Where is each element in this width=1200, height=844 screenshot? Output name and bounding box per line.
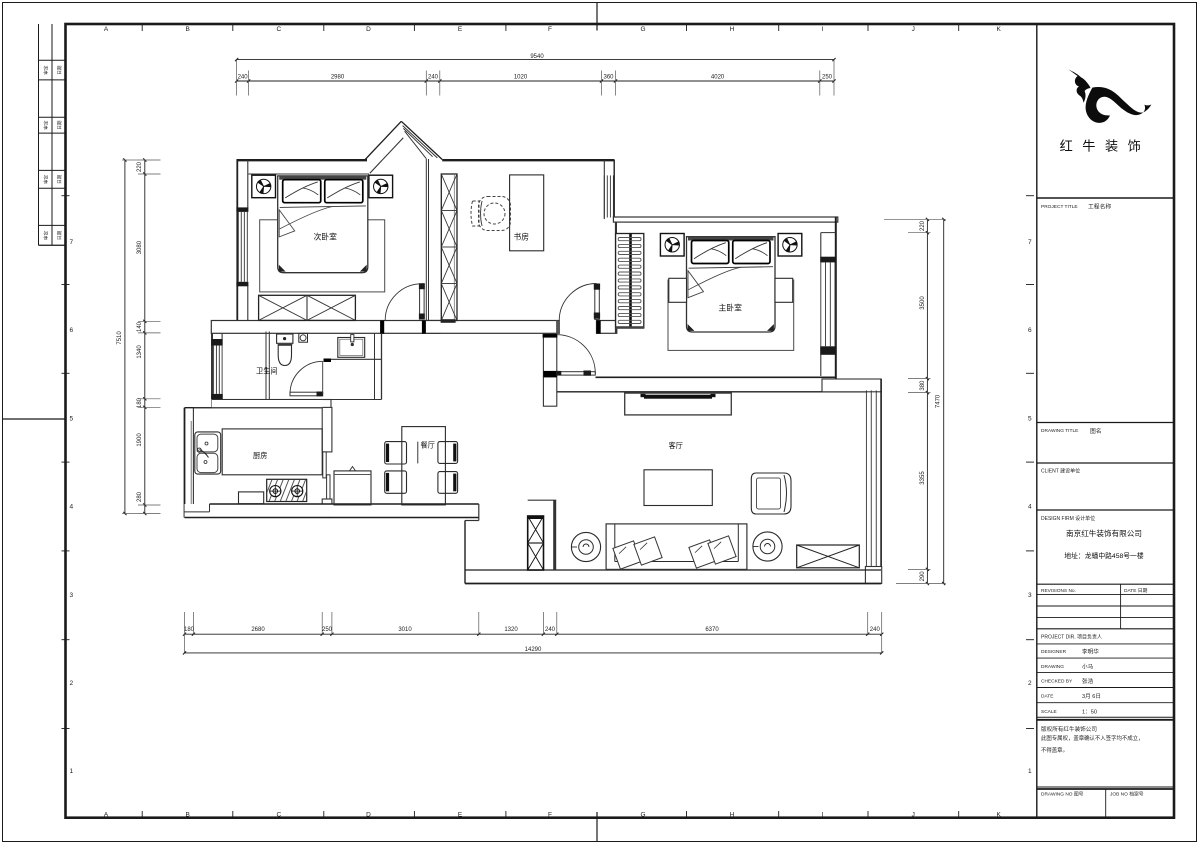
svg-text:K: K <box>997 812 1002 819</box>
svg-text:地址：龙蟠中路458号一楼: 地址：龙蟠中路458号一楼 <box>1064 551 1144 560</box>
svg-text:D: D <box>366 26 371 33</box>
svg-text:B: B <box>186 812 190 819</box>
svg-text:250: 250 <box>822 75 833 81</box>
svg-text:J: J <box>912 26 915 33</box>
svg-text:180: 180 <box>184 627 195 633</box>
svg-text:3月 6日: 3月 6日 <box>1082 693 1101 700</box>
svg-text:REVISIONS No.: REVISIONS No. <box>1041 588 1076 594</box>
svg-text:4: 4 <box>1028 504 1032 511</box>
svg-text:图名: 图名 <box>1090 427 1102 435</box>
svg-text:1340: 1340 <box>137 345 143 359</box>
svg-text:140: 140 <box>137 321 143 332</box>
svg-text:A: A <box>104 812 109 819</box>
svg-text:3080: 3080 <box>137 240 143 254</box>
svg-text:不得盖章。: 不得盖章。 <box>1041 746 1068 754</box>
svg-text:此图专属权，盖章确认不入签字均不成立，: 此图专属权，盖章确认不入签字均不成立， <box>1041 734 1143 742</box>
svg-text:7470: 7470 <box>936 394 942 408</box>
svg-text:C: C <box>277 812 282 819</box>
svg-text:审定: 审定 <box>42 120 49 130</box>
svg-text:审定: 审定 <box>42 230 49 240</box>
svg-text:250: 250 <box>322 627 333 633</box>
svg-text:1900: 1900 <box>137 433 143 447</box>
svg-text:审定: 审定 <box>42 174 49 184</box>
svg-text:7510: 7510 <box>117 331 123 345</box>
svg-text:2: 2 <box>70 680 74 687</box>
svg-text:290: 290 <box>920 571 926 582</box>
svg-text:220: 220 <box>920 220 926 231</box>
svg-text:240: 240 <box>545 627 556 633</box>
svg-text:6: 6 <box>70 327 74 334</box>
svg-text:9540: 9540 <box>530 54 544 60</box>
svg-text:4020: 4020 <box>711 75 725 81</box>
svg-text:1: 1 <box>1028 768 1032 775</box>
svg-text:A: A <box>104 26 109 33</box>
svg-text:DRAWING NO 图号: DRAWING NO 图号 <box>1041 792 1084 798</box>
svg-text:书房: 书房 <box>514 232 530 242</box>
svg-text:3355: 3355 <box>920 471 926 485</box>
svg-text:次卧室: 次卧室 <box>314 232 338 242</box>
svg-text:F: F <box>548 812 552 819</box>
svg-text:餐厅: 餐厅 <box>421 441 435 450</box>
svg-text:14290: 14290 <box>525 647 542 653</box>
svg-text:E: E <box>458 26 463 33</box>
svg-text:红牛装饰: 红牛装饰 <box>1060 139 1151 154</box>
svg-text:PROJECT DIR. 项目负责人: PROJECT DIR. 项目负责人 <box>1041 634 1102 641</box>
svg-text:280: 280 <box>137 491 143 502</box>
svg-text:220: 220 <box>137 161 143 172</box>
svg-text:J: J <box>912 812 915 819</box>
svg-text:厨房: 厨房 <box>253 451 267 460</box>
svg-text:1020: 1020 <box>514 75 528 81</box>
svg-text:2680: 2680 <box>251 627 265 633</box>
svg-text:6370: 6370 <box>705 627 719 633</box>
svg-text:6: 6 <box>1028 327 1032 334</box>
svg-text:DATE 日期: DATE 日期 <box>1124 588 1148 594</box>
svg-text:H: H <box>730 812 735 819</box>
svg-text:C: C <box>277 26 282 33</box>
svg-text:360: 360 <box>603 75 614 81</box>
svg-text:JOB NO 档案号: JOB NO 档案号 <box>1110 791 1144 798</box>
svg-text:1：50: 1：50 <box>1082 710 1097 716</box>
svg-text:7: 7 <box>70 239 74 246</box>
svg-text:4: 4 <box>70 504 74 511</box>
svg-text:DRAWING: DRAWING <box>1041 664 1064 670</box>
svg-text:E: E <box>458 812 463 819</box>
svg-text:DATE: DATE <box>1041 694 1053 700</box>
svg-text:G: G <box>640 26 645 33</box>
svg-text:主卧室: 主卧室 <box>719 303 743 313</box>
svg-text:版权所有红牛装饰公司: 版权所有红牛装饰公司 <box>1041 725 1097 733</box>
svg-text:卫生间: 卫生间 <box>256 367 278 376</box>
svg-text:D: D <box>366 812 371 819</box>
svg-text:3: 3 <box>1028 592 1032 599</box>
svg-text:李明华: 李明华 <box>1082 648 1099 656</box>
svg-text:1320: 1320 <box>504 627 518 633</box>
svg-text:180: 180 <box>137 397 143 408</box>
svg-text:审定: 审定 <box>42 65 49 75</box>
svg-text:DESIGNER: DESIGNER <box>1041 649 1067 655</box>
svg-text:DESIGN FIRM 设计单位: DESIGN FIRM 设计单位 <box>1041 515 1095 522</box>
svg-text:3500: 3500 <box>920 296 926 310</box>
svg-text:3: 3 <box>70 592 74 599</box>
svg-text:5: 5 <box>70 415 74 422</box>
svg-text:CHECKED BY: CHECKED BY <box>1041 679 1073 685</box>
svg-text:240: 240 <box>238 75 249 81</box>
svg-text:7: 7 <box>1028 239 1032 246</box>
svg-text:南京红牛装饰有限公司: 南京红牛装饰有限公司 <box>1066 528 1142 538</box>
svg-text:1: 1 <box>70 768 74 775</box>
svg-text:I: I <box>822 812 824 819</box>
svg-text:CLIENT 建设单位: CLIENT 建设单位 <box>1041 468 1080 475</box>
svg-text:PROJECT TITLE: PROJECT TITLE <box>1041 204 1078 210</box>
svg-text:H: H <box>730 26 735 33</box>
svg-text:K: K <box>997 26 1002 33</box>
svg-text:DRAWING TITLE: DRAWING TITLE <box>1041 428 1078 434</box>
svg-text:2: 2 <box>1028 680 1032 687</box>
svg-text:240: 240 <box>428 75 439 81</box>
svg-text:G: G <box>640 812 645 819</box>
svg-text:工程名称: 工程名称 <box>1088 203 1111 211</box>
svg-text:240: 240 <box>870 627 881 633</box>
svg-text:5: 5 <box>1028 415 1032 422</box>
svg-text:小马: 小马 <box>1082 663 1094 671</box>
svg-text:2980: 2980 <box>331 75 345 81</box>
svg-text:380: 380 <box>920 380 926 391</box>
svg-text:I: I <box>822 26 824 33</box>
svg-text:客厅: 客厅 <box>669 441 683 450</box>
svg-text:SCALE: SCALE <box>1041 709 1057 715</box>
svg-text:F: F <box>548 26 552 33</box>
svg-text:B: B <box>186 26 190 33</box>
svg-text:3010: 3010 <box>398 627 412 633</box>
svg-text:张浩: 张浩 <box>1082 677 1094 685</box>
